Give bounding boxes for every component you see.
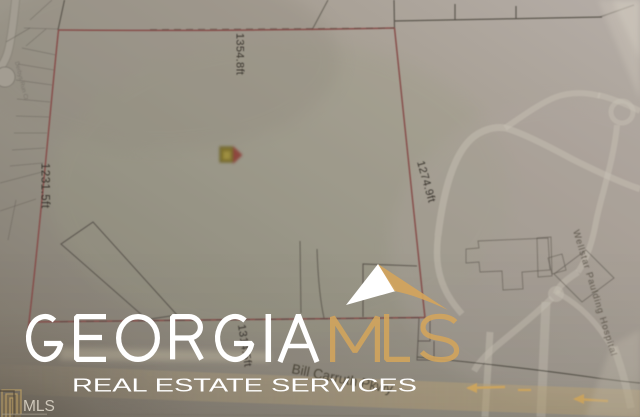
svg-text:REAL ESTATE SERVICES: REAL ESTATE SERVICES bbox=[72, 375, 417, 396]
svg-text:MLS: MLS bbox=[23, 398, 55, 415]
